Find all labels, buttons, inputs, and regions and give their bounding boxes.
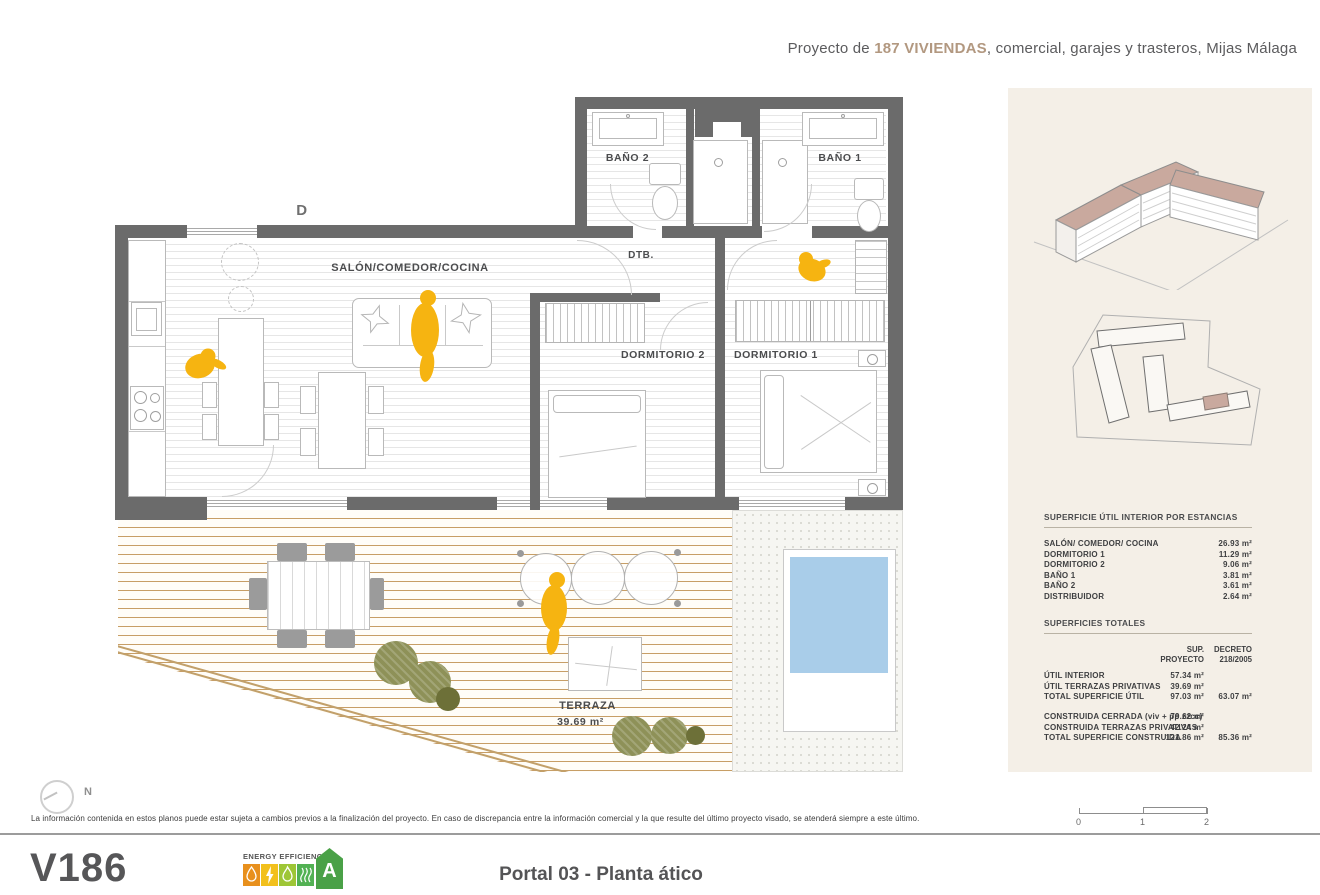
terrace-chair <box>325 630 355 648</box>
nightstand <box>858 350 886 367</box>
scale-label-0: 0 <box>1076 817 1081 827</box>
table-row: SALÓN/ COMEDOR/ COCINA26.93 m² <box>1044 539 1252 550</box>
scale-label-1: 1 <box>1140 817 1145 827</box>
sheet-title: Portal 03 - Planta ático <box>499 864 703 886</box>
person-figure <box>788 244 836 292</box>
pendant-light <box>221 243 259 281</box>
site-plan <box>1055 305 1275 465</box>
shower-core-inset <box>713 122 741 137</box>
north-label: N <box>84 786 92 798</box>
window <box>187 225 257 238</box>
nightstand <box>858 479 886 496</box>
table-row: CONSTRUIDA TERRAZAS PRIVATIVAS42.24 m² <box>1044 723 1252 734</box>
col-header-decreto: DECRETO 218/2005 <box>1204 645 1252 664</box>
wall-segment <box>347 497 497 510</box>
disclaimer-text: La información contenida en estos planos… <box>31 814 919 823</box>
kitchen-sink <box>131 302 162 336</box>
dining-chair <box>368 386 384 414</box>
info-sidebar: SUPERFICIE ÚTIL INTERIOR POR ESTANCIAS S… <box>1008 88 1312 772</box>
burner <box>150 393 160 403</box>
burner <box>150 411 161 422</box>
outdoor-sofa-cushion <box>571 551 625 605</box>
footer-divider <box>0 833 1320 835</box>
faucet <box>841 114 845 118</box>
table-row: DORMITORIO 29.06 m² <box>1044 560 1252 571</box>
table-group-gap <box>1044 703 1252 712</box>
stool <box>264 382 279 408</box>
slider-door <box>497 497 607 510</box>
counter-division <box>129 346 165 347</box>
bed-foldline <box>801 402 871 450</box>
wall-segment <box>575 97 587 238</box>
outdoor-sofa-cushion <box>624 551 678 605</box>
star-cushion <box>450 302 482 334</box>
wall-segment <box>662 226 762 238</box>
scale-tick <box>1207 808 1208 814</box>
room-label-dorm2: DORMITORIO 2 <box>613 349 713 361</box>
lamp <box>867 354 878 365</box>
table-row: BAÑO 13.81 m² <box>1044 571 1252 582</box>
room-label-bano1: BAÑO 1 <box>795 152 885 164</box>
kitchen-counter <box>128 240 166 497</box>
terraza-area: 39.69 m² <box>533 716 628 728</box>
table-row: TOTAL SUPERFICIE CONSTRUIDA121.86 m²85.3… <box>1044 733 1252 744</box>
rooms-table-title: SUPERFICIE ÚTIL INTERIOR POR ESTANCIAS <box>1044 512 1252 528</box>
faucet <box>626 114 630 118</box>
burner <box>134 409 147 422</box>
table-row: ÚTIL TERRAZAS PRIVATIVAS39.69 m² <box>1044 682 1252 693</box>
sofa-post <box>674 549 681 556</box>
room-label-terraza: TERRAZA <box>540 700 635 712</box>
wall-segment <box>715 238 725 510</box>
room-label-bano2: BAÑO 2 <box>585 152 670 164</box>
bush <box>651 717 688 754</box>
table-foldline <box>575 663 637 670</box>
col-header-proyecto: SUP. PROYECTO <box>1152 645 1204 664</box>
wall-segment <box>115 225 128 520</box>
compass-needle <box>43 792 57 801</box>
slider-door <box>739 497 845 510</box>
lamp <box>867 483 878 494</box>
pillow <box>553 395 641 413</box>
person-figure <box>180 340 230 390</box>
north-compass-icon <box>40 780 74 814</box>
room-label-dorm1: DORMITORIO 1 <box>726 349 826 361</box>
vanity-sink <box>802 112 884 146</box>
table-row: DORMITORIO 111.29 m² <box>1044 550 1252 561</box>
sink-basin <box>136 308 157 331</box>
energy-water-icon <box>243 864 260 886</box>
pool <box>790 557 888 673</box>
terrace-chair <box>277 543 307 561</box>
table-row: DISTRIBUIDOR2.64 m² <box>1044 592 1252 603</box>
burner <box>134 391 147 404</box>
sink-basin <box>809 118 877 139</box>
pillow <box>764 375 784 469</box>
star-cushion <box>360 304 390 334</box>
scale-tick <box>1079 808 1080 814</box>
header-prefix: Proyecto de <box>788 40 875 57</box>
vanity-sink <box>592 112 664 146</box>
dining-chair <box>300 386 316 414</box>
shower-drain <box>778 158 787 167</box>
terrace-chair <box>277 630 307 648</box>
wardrobe <box>545 303 645 343</box>
wall-segment <box>115 497 207 520</box>
bed <box>760 370 877 473</box>
shower-stall <box>693 140 748 224</box>
energy-gas-icon <box>279 864 296 886</box>
stool <box>264 414 279 440</box>
terrace-table <box>267 561 370 630</box>
bush-small <box>436 687 460 711</box>
bush-small <box>686 726 705 745</box>
closet-shelves <box>855 240 887 294</box>
header-highlight: 187 VIVIENDAS <box>874 40 987 57</box>
totals-table: SUPERFICIES TOTALES SUP. PROYECTO DECRET… <box>1044 618 1252 744</box>
room-label-salon: SALÓN/COMEDOR/COCINA <box>300 262 520 274</box>
toilet-bowl <box>857 200 881 232</box>
bed-foldline <box>559 446 636 458</box>
wall-segment <box>845 497 903 510</box>
shower-drain <box>714 158 723 167</box>
wardrobe <box>735 300 885 342</box>
side-table <box>568 637 642 691</box>
unit-code: V186 <box>30 846 127 891</box>
plan-sheet: Proyecto de 187 VIVIENDAS, comercial, ga… <box>0 0 1320 895</box>
table-row: CONSTRUIDA CERRADA (viv + pp zzcc)79.62 … <box>1044 712 1252 723</box>
sink-basin <box>599 118 657 139</box>
dining-chair <box>368 428 384 456</box>
scale-label-2: 2 <box>1204 817 1209 827</box>
wall-segment <box>530 293 540 510</box>
wall-segment <box>575 226 633 238</box>
table-row: TOTAL SUPERFICIE ÚTIL97.03 m²63.07 m² <box>1044 692 1252 703</box>
header-suffix: , comercial, garajes y trasteros, Mijas … <box>987 40 1297 57</box>
bed <box>548 390 646 498</box>
section-marker-d: D <box>290 202 314 219</box>
dining-table <box>318 372 366 469</box>
totals-table-title: SUPERFICIES TOTALES <box>1044 618 1252 634</box>
wall-segment <box>752 109 760 226</box>
wall-segment <box>257 225 575 238</box>
sofa-post <box>517 600 524 607</box>
terrace-chair <box>249 578 267 610</box>
sofa-post <box>517 550 524 557</box>
room-label-dtb: DTB. <box>618 250 664 261</box>
stove <box>130 386 164 430</box>
stool <box>202 414 217 440</box>
bed-foldline <box>800 395 870 443</box>
wall-segment <box>888 97 903 510</box>
wardrobe-divider <box>810 301 811 341</box>
energy-electricity-icon <box>261 864 278 886</box>
table-row: ÚTIL INTERIOR57.34 m² <box>1044 671 1252 682</box>
energy-heating-icon <box>297 864 314 886</box>
toilet <box>649 163 681 185</box>
project-header: Proyecto de 187 VIVIENDAS, comercial, ga… <box>788 40 1297 57</box>
totals-table-header: SUP. PROYECTO DECRETO 218/2005 <box>1044 645 1252 664</box>
toilet <box>854 178 884 200</box>
terrace-chair <box>325 543 355 561</box>
energy-efficiency-label: ENERGY EFFICIENCY <box>243 852 328 861</box>
building-3d-render <box>1026 100 1294 290</box>
rooms-table: SUPERFICIE ÚTIL INTERIOR POR ESTANCIAS S… <box>1044 512 1252 603</box>
table-row: BAÑO 23.61 m² <box>1044 581 1252 592</box>
terrace-chair <box>370 578 384 610</box>
dining-chair <box>300 428 316 456</box>
slider-door <box>207 497 347 510</box>
pendant-light <box>228 286 254 312</box>
person-figure <box>400 286 452 384</box>
sofa-post <box>674 600 681 607</box>
counter-division <box>129 431 165 432</box>
scale-bracket <box>1143 807 1207 813</box>
